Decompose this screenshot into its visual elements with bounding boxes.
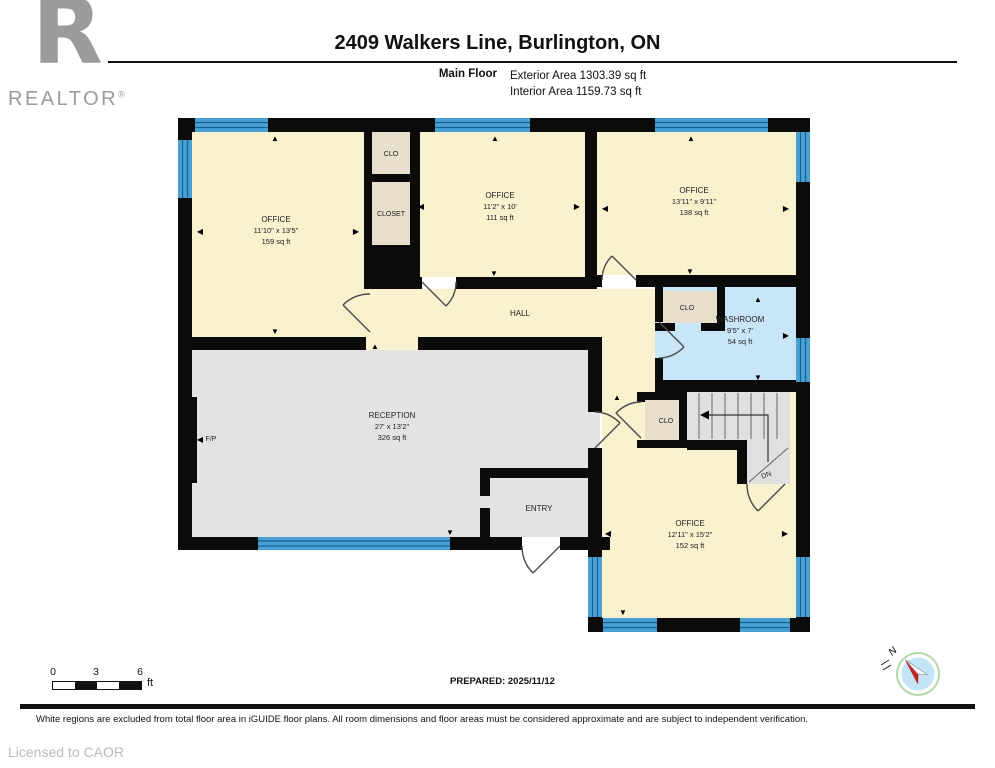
scale-tick-6: 6 [137,666,143,678]
floor-plan-page: R REALTOR® 2409 Walkers Line, Burlington… [0,0,995,768]
wall-marker-icon: ▼ [271,327,279,336]
room-label-office-tl: OFFICE [261,215,290,224]
room-label-office-tr: OFFICE [679,186,708,195]
realtor-logo-r-icon: R [32,0,103,78]
wall-marker-icon: ▲ [491,134,499,143]
wall-marker-icon: ◀ [605,529,612,538]
room-area-office-tm: 111 sq ft [486,213,515,222]
room-dims-office-br: 12'11" x 15'2" [668,530,713,539]
fireplace-label: F/P [206,436,217,443]
floor-areas: Exterior Area 1303.39 sq ft Interior Are… [510,68,646,100]
room-dims-office-tm: 11'2" x 10' [483,202,517,211]
room-dims-office-tl: 11'10" x 13'5" [254,226,299,235]
room-label-clo-washroom: CLO [680,305,695,312]
floor-plan: ▲ ▼ ◀ ▶ ▲ ◀ ▶ ▼ ▲ ◀ ▶ ▼ ▲ ▶ ▼ ▲ ▼ ◀ ▶ ▼ … [170,110,830,655]
wall-marker-icon: ▼ [686,267,694,276]
room-label-clo-top: CLO [384,151,399,158]
wall-marker-icon: ▼ [446,528,454,537]
licensed-text: Licensed to CAOR [8,744,124,760]
room-label-office-br: OFFICE [675,519,704,528]
wall-marker-icon: ▲ [687,134,695,143]
wall-marker-icon: ◀ [602,204,609,213]
room-area-reception: 326 sq ft [378,433,408,442]
wall-marker-icon: ▲ [613,393,621,402]
fireplace-marker-icon: ◀ [197,435,204,444]
scale-tick-3: 3 [93,666,99,678]
room-label-closet: CLOSET [377,211,406,218]
wall-marker-icon: ▶ [783,331,790,340]
scale-segment [97,682,119,689]
room-label-entry: ENTRY [526,504,554,513]
room-label-clo-stairs: CLO [659,418,674,425]
scale-segment [53,682,75,689]
wall-marker-icon: ▶ [783,204,790,213]
interior-area: Interior Area 1159.73 sq ft [510,84,646,100]
scale-unit: ft [147,677,153,689]
wall-marker-icon: ▶ [574,202,581,211]
floor-label: Main Floor [439,68,497,100]
compass-north-label: N [887,645,900,659]
room-area-washroom: 54 sq ft [728,337,754,346]
room-area-office-tr: 138 sq ft [680,208,710,217]
wall-marker-icon: ▼ [490,269,498,278]
room-area-office-br: 152 sq ft [676,541,706,550]
scale-segment [119,682,141,689]
realtor-logo-word: REALTOR® [8,88,125,111]
wall-marker-icon: ▼ [754,373,762,382]
compass-icon: N [878,640,950,702]
scale-bar: 0 3 6 ft [50,666,210,696]
wall-marker-icon: ▶ [782,529,789,538]
exterior-area: Exterior Area 1303.39 sq ft [510,68,646,84]
scale-tick-0: 0 [50,666,56,678]
wall-marker-icon: ◀ [197,227,204,236]
prepared-date: PREPARED: 2025/11/12 [450,676,555,687]
room-label-office-tm: OFFICE [485,191,514,200]
room-label-hall: HALL [510,309,531,318]
wall-marker-icon: ▲ [271,134,279,143]
wall-marker-icon: ▼ [619,608,627,617]
wall-marker-icon: ▲ [371,342,379,351]
registered-mark: ® [118,89,125,99]
room-area-office-tl: 159 sq ft [262,237,292,246]
wall-marker-icon: ▲ [754,295,762,304]
wall-marker-icon: ▶ [353,227,360,236]
header-divider [37,61,957,63]
room-dims-office-tr: 13'11" x 9'11" [672,197,717,206]
disclaimer-text: White regions are excluded from total fl… [36,714,808,725]
wall-marker-icon: ◀ [418,202,425,211]
scale-bar-graphic [52,681,142,690]
room-label-reception: RECEPTION [369,411,416,420]
floor-info: Main Floor Exterior Area 1303.39 sq ft I… [45,68,995,100]
page-title: 2409 Walkers Line, Burlington, ON [0,32,995,55]
footer-divider [20,704,975,709]
realtor-logo: R [24,0,108,92]
scale-segment [75,682,97,689]
realtor-logo-text: REALTOR [8,88,118,110]
room-label-washroom: WASHROOM [716,315,765,324]
room-dims-washroom: 9'5" x 7' [727,326,754,335]
room-dims-reception: 27' x 13'2" [375,422,410,431]
